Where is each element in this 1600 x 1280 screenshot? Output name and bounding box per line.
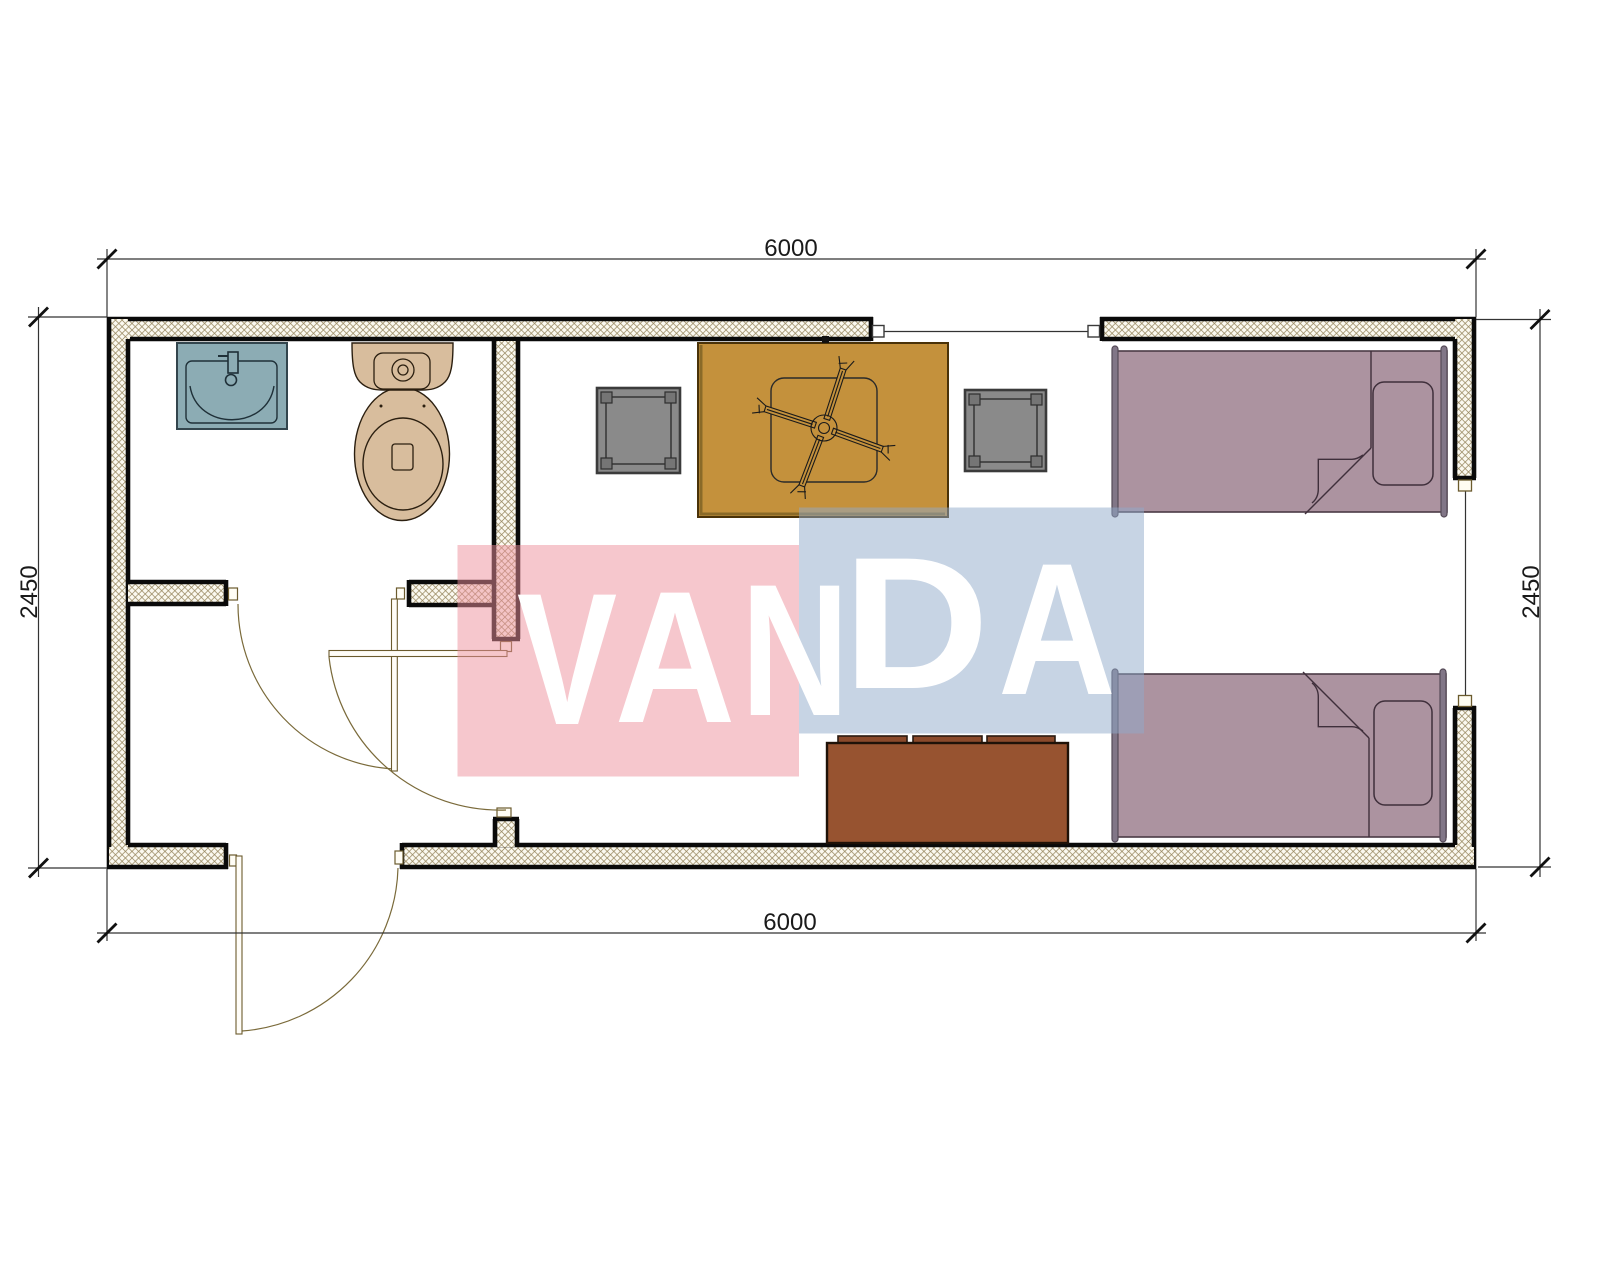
svg-text:6000: 6000 — [763, 909, 816, 936]
svg-text:A: A — [998, 524, 1116, 734]
svg-text:V: V — [517, 555, 617, 765]
svg-text:2450: 2450 — [16, 565, 43, 618]
svg-text:6000: 6000 — [764, 235, 817, 262]
svg-text:D: D — [843, 519, 990, 728]
svg-text:2450: 2450 — [1518, 565, 1545, 618]
svg-text:A: A — [615, 552, 736, 762]
svg-text:N: N — [741, 546, 850, 756]
